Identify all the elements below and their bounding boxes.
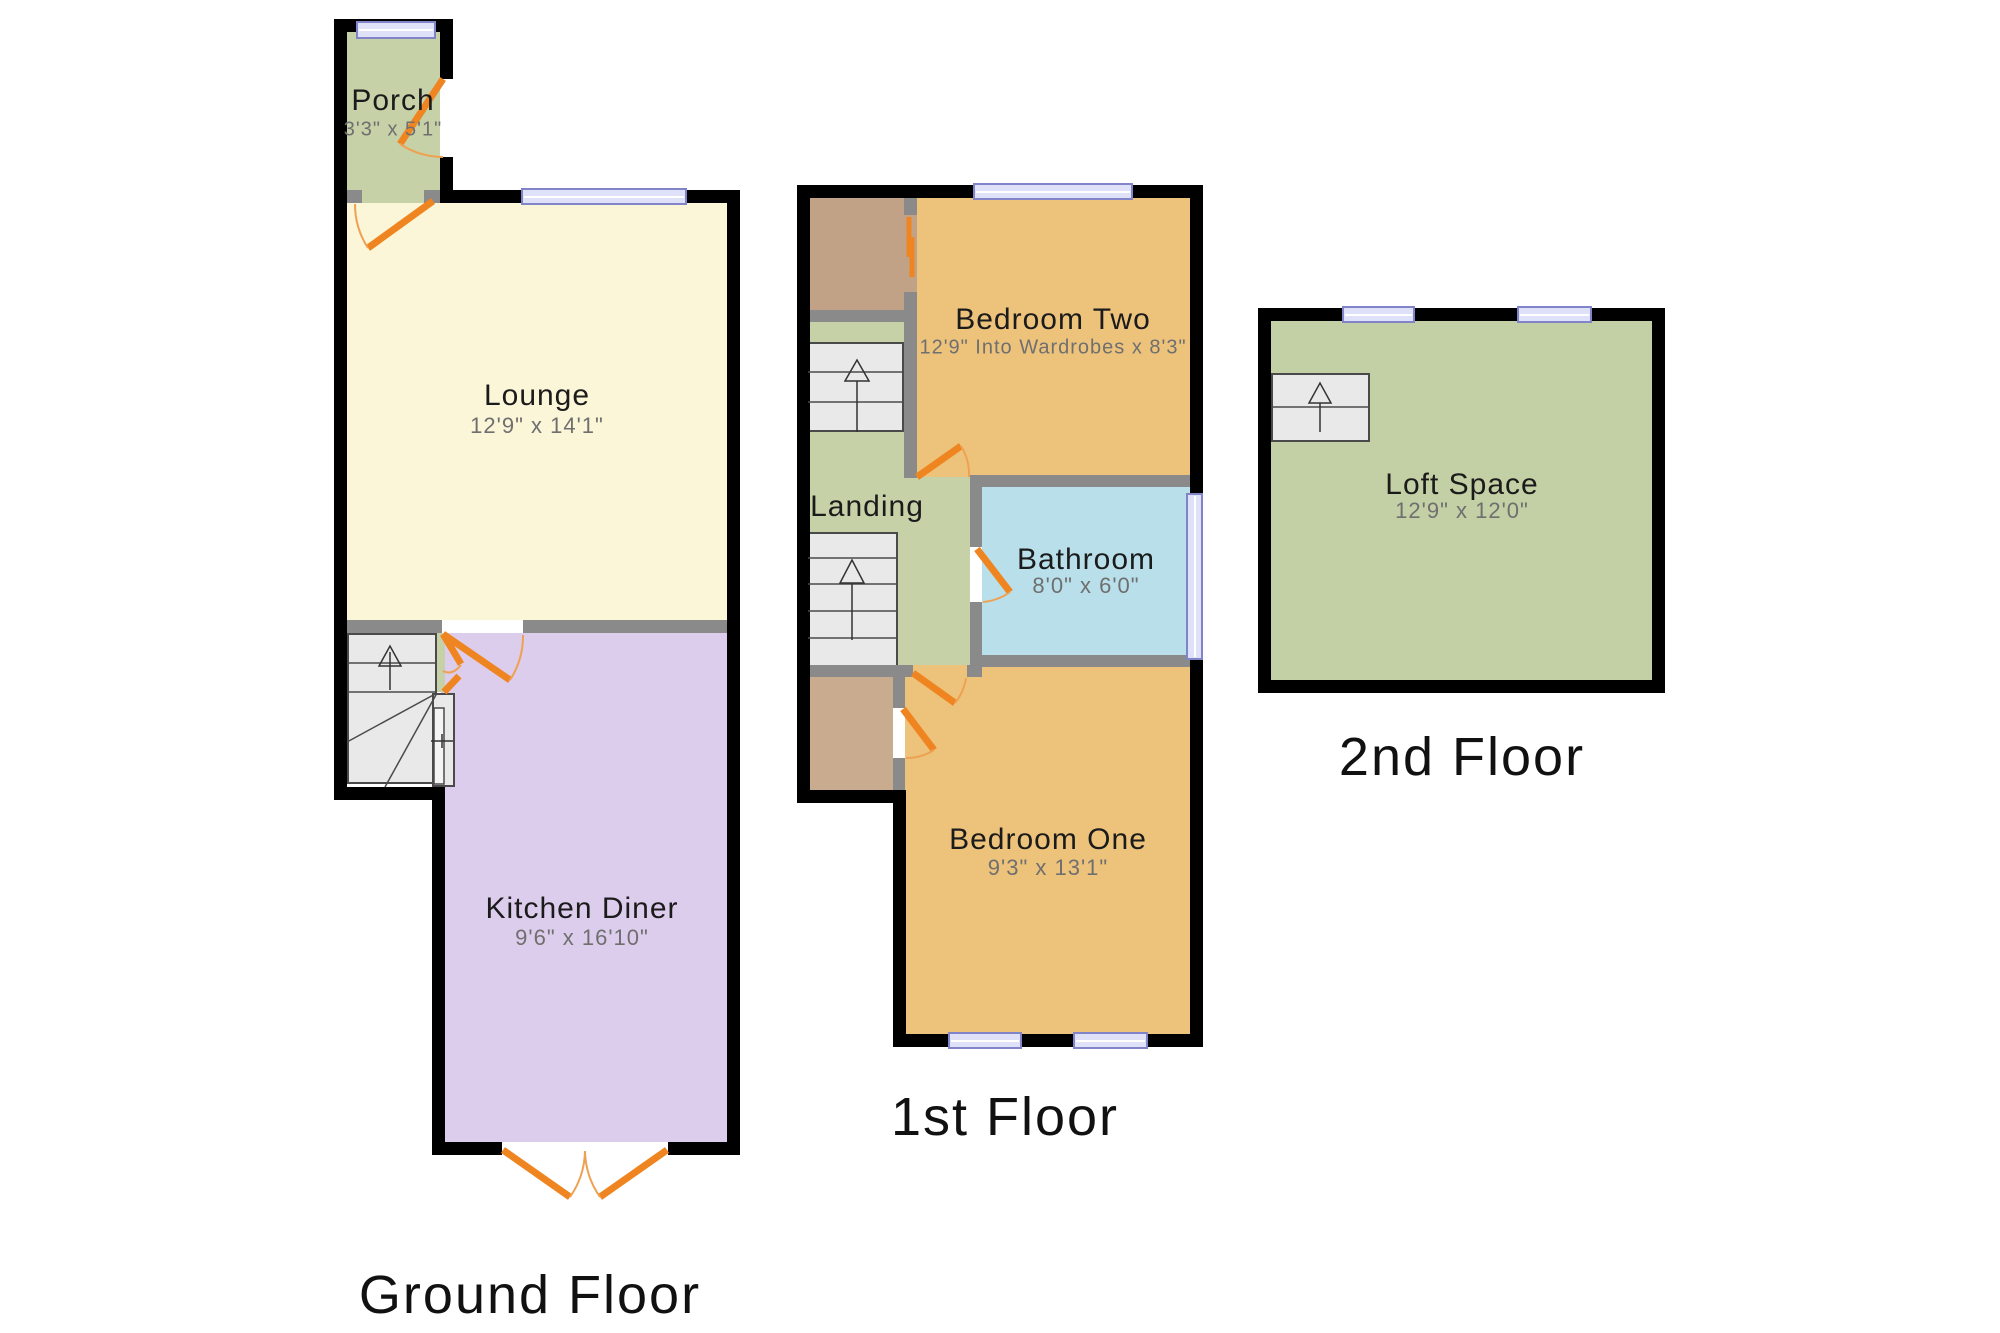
wall-first-left-lower bbox=[893, 790, 906, 1047]
dims-lounge: 12'9" x 14'1" bbox=[470, 413, 604, 439]
window-bedroom-one-left bbox=[948, 1032, 1022, 1049]
dims-bedroom-two: 12'9" Into Wardrobes x 8'3" bbox=[919, 337, 1186, 360]
stairs-ground bbox=[347, 633, 437, 784]
wall-bathroom-top bbox=[970, 475, 1190, 487]
title-second-floor: 2nd Floor bbox=[1339, 726, 1585, 788]
stairs-loft bbox=[1271, 373, 1370, 442]
patio-door-left bbox=[503, 1150, 570, 1197]
window-loft-left bbox=[1342, 306, 1415, 323]
wardrobe-area bbox=[806, 198, 917, 310]
title-ground-floor: Ground Floor bbox=[359, 1264, 701, 1326]
wall-closet-right-upper bbox=[893, 677, 905, 708]
wall-landing-bedroom2-upper bbox=[904, 198, 917, 215]
label-lounge: Lounge bbox=[484, 379, 590, 413]
wall-bathroom-bottom bbox=[970, 655, 1190, 667]
wall-second-bottom bbox=[1258, 680, 1665, 693]
window-bedroom-two bbox=[973, 183, 1133, 200]
patio-door-right-arc bbox=[585, 1151, 600, 1197]
window-lounge bbox=[521, 188, 687, 205]
wall-divider-right bbox=[523, 620, 727, 633]
label-bedroom-one: Bedroom One bbox=[949, 823, 1147, 857]
dims-bedroom-one: 9'3" x 13'1" bbox=[988, 855, 1108, 881]
wall-ground-step bbox=[334, 787, 445, 800]
wall-closet-top bbox=[806, 665, 913, 677]
wall-wardrobe-bottom bbox=[806, 310, 917, 322]
wall-ground-right bbox=[727, 190, 740, 1155]
understairs-cupboard bbox=[432, 693, 455, 787]
dims-loft: 12'9" x 12'0" bbox=[1395, 498, 1529, 524]
wall-corner-piece bbox=[967, 665, 982, 677]
label-kitchen: Kitchen Diner bbox=[485, 892, 678, 926]
floorplan-canvas: Porch 3'3" x 5'1" Lounge 12'9" x 14'1" K… bbox=[0, 0, 2000, 1333]
wall-second-right bbox=[1652, 308, 1665, 693]
patio-door-left-arc bbox=[570, 1151, 585, 1197]
wall-closet-right-lower bbox=[893, 758, 905, 790]
window-loft-right bbox=[1517, 306, 1592, 323]
wall-bathroom-left-upper bbox=[970, 487, 982, 547]
wall-kitchen-left bbox=[432, 787, 445, 1155]
dims-porch: 3'3" x 5'1" bbox=[344, 119, 442, 142]
door-jamb-left bbox=[347, 190, 362, 203]
wall-divider-left bbox=[347, 620, 442, 633]
stairs-first-upper bbox=[808, 342, 904, 432]
label-landing: Landing bbox=[810, 490, 924, 524]
wall-first-left bbox=[797, 185, 810, 803]
room-kitchen-diner bbox=[441, 633, 727, 1142]
dims-kitchen: 9'6" x 16'10" bbox=[515, 925, 649, 951]
label-bedroom-two: Bedroom Two bbox=[955, 303, 1151, 337]
wall-first-bottom bbox=[893, 1034, 1203, 1047]
patio-door-right bbox=[600, 1150, 667, 1197]
window-porch bbox=[356, 21, 436, 39]
wall-kitchen-bottom-right bbox=[668, 1142, 740, 1155]
label-porch: Porch bbox=[351, 84, 434, 118]
bedroom-one-wardrobe bbox=[806, 677, 893, 790]
dims-bathroom: 8'0" x 6'0" bbox=[1032, 573, 1139, 599]
wall-second-top bbox=[1258, 308, 1665, 321]
window-bedroom-one-right bbox=[1073, 1032, 1148, 1049]
stairs-side-strip bbox=[437, 633, 445, 692]
title-first-floor: 1st Floor bbox=[891, 1086, 1119, 1148]
window-bathroom bbox=[1186, 493, 1203, 660]
wall-second-left bbox=[1258, 308, 1271, 693]
label-bathroom: Bathroom bbox=[1017, 543, 1155, 577]
wall-kitchen-bottom-left bbox=[432, 1142, 502, 1155]
wall-first-step bbox=[797, 790, 905, 803]
label-loft: Loft Space bbox=[1385, 468, 1538, 502]
stairs-first-lower bbox=[808, 532, 898, 667]
wall-porch-right-upper bbox=[440, 32, 453, 79]
door-jamb-right bbox=[424, 190, 440, 203]
